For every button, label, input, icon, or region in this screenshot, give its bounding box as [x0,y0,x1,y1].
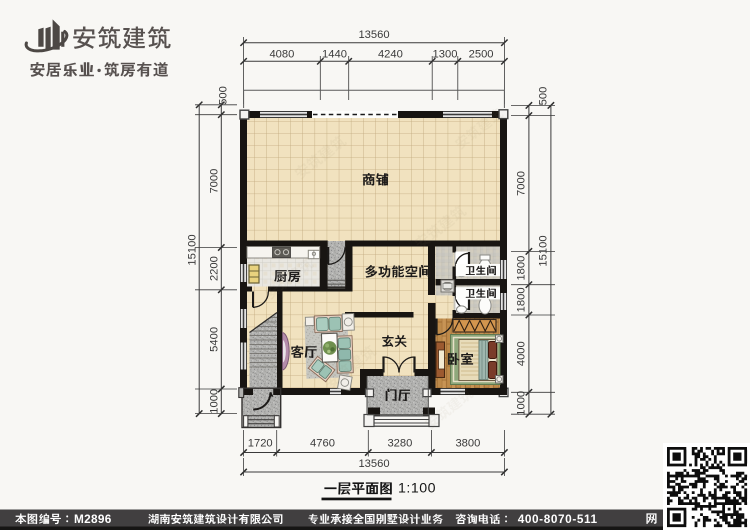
svg-text:1800: 1800 [516,256,528,281]
svg-text:5400: 5400 [209,327,221,352]
svg-text:M2896: M2896 [74,512,112,526]
svg-text:3280: 3280 [387,438,412,450]
svg-text:2500: 2500 [469,49,494,61]
svg-text:500: 500 [218,86,230,105]
svg-text:1800: 1800 [516,287,528,312]
svg-text:1:100: 1:100 [398,481,436,497]
svg-text:1000: 1000 [209,389,221,414]
svg-text:400-8070-511: 400-8070-511 [518,512,598,526]
svg-text:1000: 1000 [516,391,528,416]
svg-text:1440: 1440 [322,49,347,61]
svg-text:3800: 3800 [455,438,480,450]
svg-text:13560: 13560 [358,458,389,470]
svg-text:2200: 2200 [209,256,221,281]
svg-text:4080: 4080 [269,49,294,61]
svg-text:7000: 7000 [209,169,221,194]
svg-text:13560: 13560 [358,29,389,41]
svg-text:1720: 1720 [248,438,273,450]
svg-text:15100: 15100 [187,234,199,265]
svg-text:4240: 4240 [378,49,403,61]
svg-text:4000: 4000 [516,341,528,366]
svg-text:1300: 1300 [433,49,458,61]
svg-text:4760: 4760 [310,438,335,450]
svg-text:7000: 7000 [516,171,528,196]
svg-text:500: 500 [538,87,550,106]
